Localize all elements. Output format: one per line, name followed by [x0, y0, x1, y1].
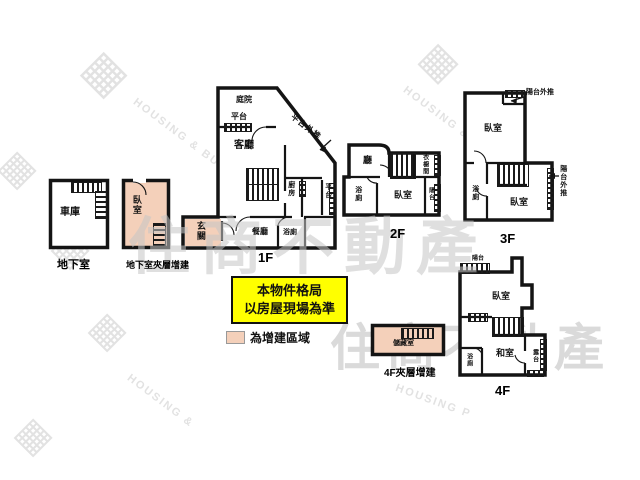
room-label-hall: 廳 [363, 156, 372, 166]
floorplan-canvas: ▦ HOUSING & BUSINESS ▦ HOUSING & BUSINES… [0, 0, 640, 480]
room-label-terrace: 露台 [531, 349, 538, 363]
room-label-bedroom: 臥室 [131, 195, 141, 215]
watermark-logo-icon: ▦ [0, 142, 46, 196]
watermark-logo-icon: ▦ [82, 304, 136, 358]
f2-window-hatch [434, 155, 441, 176]
room-label-closet: 衣櫥間 [421, 154, 428, 175]
room-label-yard: 庭院 [236, 96, 252, 105]
f1-window-hatch [224, 123, 252, 132]
room-label-garage: 車庫 [60, 207, 80, 218]
plan-4f: 陽台 臥室 和室 浴廁 露台 [455, 255, 555, 383]
legend-addition-swatch [226, 331, 245, 344]
f4-window-hatch [540, 339, 547, 371]
room-label-balcony: 陽台 [427, 187, 434, 201]
watermark-logo-icon: ▦ [73, 41, 138, 106]
watermark-housing-frag-text: HOUSING P [394, 382, 473, 421]
f4-balcony-hatch [460, 263, 490, 274]
f4-mezz-stairs-hatch [401, 328, 434, 339]
room-label-bath: 浴廁 [283, 229, 297, 237]
floor-label-4f: 4F [495, 383, 510, 398]
f2-stairs-hatch [390, 153, 416, 179]
room-label-platform-right: 平台 [324, 183, 332, 199]
room-label-bath: 浴廁 [471, 185, 479, 201]
f4-window-hatch [527, 370, 544, 377]
plan-basement: 車庫 [48, 178, 110, 250]
room-label-kitchen: 廚房 [287, 181, 295, 197]
floor-label-3f: 3F [500, 231, 515, 246]
disclaimer-line2: 以房屋現場為準 [244, 300, 335, 318]
room-label-platform: 平台 [231, 113, 247, 122]
room-label-entry: 玄關 [195, 221, 205, 241]
floor-label-1f: 1F [258, 250, 273, 265]
room-label-bedroom: 臥室 [484, 124, 502, 134]
f3-stairs-hatch [497, 164, 529, 187]
disclaimer-line1: 本物件格局 [257, 282, 322, 300]
room-label-balcony-extension: 陽台外推 [526, 89, 554, 97]
room-label-storage: 儲藏室 [393, 340, 414, 348]
room-label-living: 客廳 [234, 140, 254, 151]
plan-4f-mezzanine: 儲藏室 [370, 323, 446, 357]
floor-label-basement-mezzanine: 地下室夾層增建 [126, 258, 189, 271]
floor-label-2f: 2F [390, 226, 405, 241]
room-label-bedroom: 臥室 [492, 292, 510, 302]
basement-mezz-stairs-hatch [153, 223, 166, 247]
f1-window-hatch [299, 181, 306, 197]
plan-1f: 庭院 平台 客廳 廚房 餐廳 浴廁 平台 玄關 平台外推 [180, 83, 355, 263]
f3-window-hatch [505, 90, 525, 98]
room-label-tatami: 和室 [496, 349, 514, 359]
room-label-balcony: 陽台 [472, 256, 484, 263]
room-label-bath: 浴廁 [354, 186, 362, 202]
room-label-balcony-extension: 陽台外推 [559, 165, 567, 197]
legend-addition-label: 為增建區域 [250, 329, 310, 346]
disclaimer-note: 本物件格局 以房屋現場為準 [231, 276, 348, 324]
floor-label-4f-mezzanine: 4F夾層增建 [384, 364, 436, 379]
plan-3f: 臥室 臥室 浴廁 陽台外推 陽台外推 [460, 88, 572, 236]
f3-walls [460, 88, 572, 236]
floor-label-basement: 地下室 [57, 256, 90, 272]
basement-stairs-hatch [95, 191, 107, 219]
f4-stairs-hatch [492, 317, 524, 337]
plan-2f: 廳 浴廁 臥室 衣櫥間 陽台 [336, 142, 444, 226]
f1-stairs-hatch [246, 168, 279, 185]
watermark-logo-icon: ▦ [411, 34, 468, 91]
f4-window-hatch [468, 313, 488, 322]
room-label-bedroom: 臥室 [510, 198, 528, 208]
room-label-bedroom: 臥室 [394, 191, 412, 201]
f2-window-hatch [434, 184, 441, 212]
watermark-housing-frag-text: HOUSING & [125, 372, 196, 430]
f3-window-hatch [547, 168, 554, 210]
f1-stairs-hatch [246, 184, 279, 201]
plan-basement-mezzanine: 臥室 [121, 178, 171, 250]
watermark-logo-icon: ▦ [8, 409, 62, 463]
room-label-dining: 餐廳 [252, 228, 268, 237]
room-label-bath: 浴廁 [465, 353, 472, 367]
